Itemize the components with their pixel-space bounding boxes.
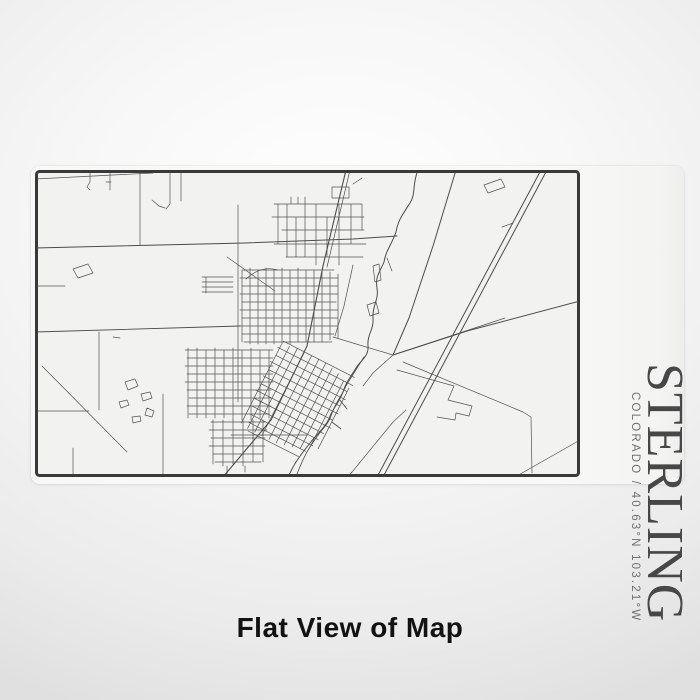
- map-panel: [35, 170, 580, 477]
- city-name-vertical-text: STERLING: [636, 363, 693, 622]
- street-map-graphic: [35, 170, 580, 477]
- map-background: [35, 170, 580, 477]
- coordinates-vertical-text: COLORADO / 40.63°N 103.21°W: [629, 392, 641, 622]
- view-caption: Flat View of Map: [0, 612, 700, 644]
- product-label-card[interactable]: STERLING COLORADO / 40.63°N 103.21°W: [31, 166, 684, 484]
